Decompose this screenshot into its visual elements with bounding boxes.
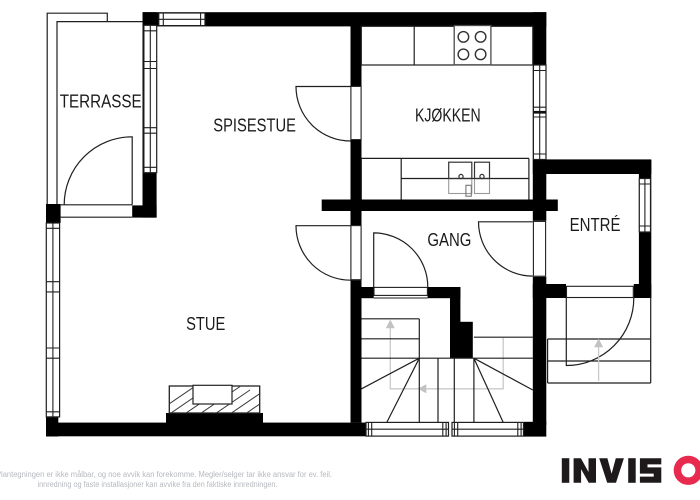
svg-text:STUE: STUE [186,314,225,334]
svg-text:KJØKKEN: KJØKKEN [415,106,481,126]
svg-text:GANG: GANG [427,230,471,250]
svg-text:TERRASSE: TERRASSE [60,91,142,111]
svg-text:innredning og faste installasj: innredning og faste installasjoner kan a… [38,480,278,489]
svg-text:Plantegningen er ikke målbar,: Plantegningen er ikke målbar, og noe avv… [0,470,332,479]
svg-text:ENTRÉ: ENTRÉ [570,215,621,235]
svg-text:SPISESTUE: SPISESTUE [213,115,296,135]
